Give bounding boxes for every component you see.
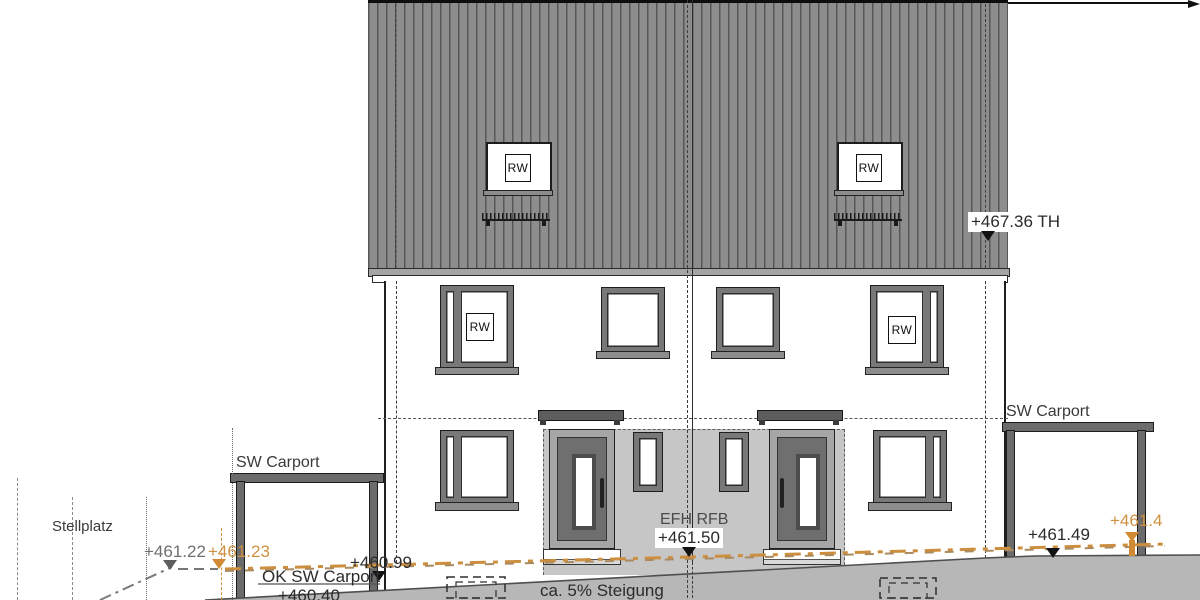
level-terrain-right: +461.49 <box>1028 525 1090 545</box>
level-marker-orange-stem <box>1129 540 1135 556</box>
level-terrain-existing-left: +461.22 <box>144 542 206 562</box>
ok-carport-label: OK SW Carport <box>262 567 380 587</box>
level-ffl: +461.50 <box>655 528 723 548</box>
elevation-drawing: RW RW RW RW <box>0 0 1200 600</box>
terrain-section <box>0 0 1200 600</box>
guide-line <box>17 478 18 600</box>
party-wall-line-below <box>692 562 693 598</box>
guide-line <box>232 428 233 600</box>
level-marker <box>682 547 696 557</box>
level-marker <box>981 231 995 241</box>
stellplatz-label: Stellplatz <box>52 518 113 535</box>
unit-label: EFH RFB <box>660 511 728 529</box>
level-ridge-th: +467.36 TH <box>968 212 1063 232</box>
level-marker <box>1046 548 1060 558</box>
level-carport-floor: +460.40 <box>278 586 340 600</box>
existing-terrain-line-left <box>100 567 172 600</box>
party-wall-line-dashed <box>687 0 688 598</box>
level-marker <box>163 560 177 570</box>
level-marker-orange <box>212 559 226 569</box>
guide-line <box>72 497 73 600</box>
level-terrain-planned-right: +461.4 <box>1110 511 1162 531</box>
party-wall-line <box>692 0 693 562</box>
slope-label: ca. 5% Steigung <box>540 581 664 600</box>
